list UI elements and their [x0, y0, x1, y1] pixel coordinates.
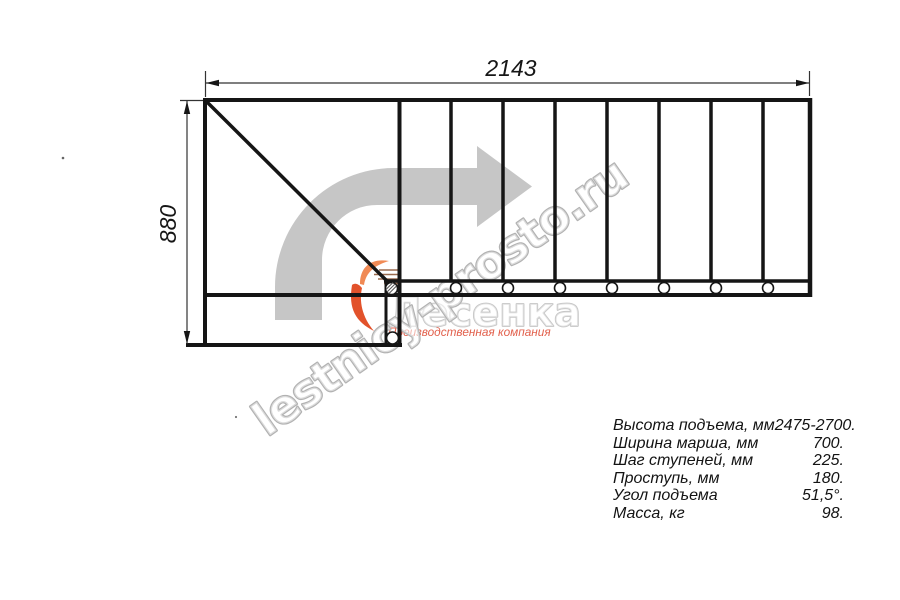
spec-label: Шаг ступеней, мм — [613, 452, 753, 470]
bolt-hole — [763, 283, 774, 294]
dim-arrow-right — [796, 80, 809, 86]
spec-label: Высота подъема, мм — [613, 417, 775, 435]
spec-row-step-pitch: Шаг ступеней, мм 225. — [613, 452, 844, 470]
dim-arrow-left — [206, 80, 219, 86]
spec-value: 98. — [822, 505, 844, 523]
spec-value: 180. — [813, 470, 844, 488]
spec-value: 700. — [813, 435, 844, 453]
spec-row-mass: Масса, кг 98. — [613, 505, 844, 523]
bolt-hole — [607, 283, 618, 294]
spec-label: Масса, кг — [613, 505, 685, 523]
spec-label: Угол подъема — [613, 487, 718, 505]
print-speck — [62, 157, 65, 160]
spec-value: 51,5°. — [802, 487, 844, 505]
bolt-hole — [659, 283, 670, 294]
spec-row-angle: Угол подъема 51,5°. — [613, 487, 844, 505]
spec-row-flight-width: Ширина марша, мм 700. — [613, 435, 844, 453]
stair-drawing-page: Лесенка Производственная компания lestni… — [0, 0, 900, 600]
dimension-width-label: 2143 — [484, 55, 536, 81]
spec-label: Проступь, мм — [613, 470, 719, 488]
dimension-width: 2143 — [206, 55, 810, 97]
dimension-height-label: 880 — [155, 205, 181, 244]
spec-label: Ширина марша, мм — [613, 435, 758, 453]
bolt-hole — [451, 283, 462, 294]
dim-arrow-bottom — [184, 331, 190, 344]
dim-arrow-top — [184, 101, 190, 114]
bolt-hole — [711, 283, 722, 294]
bolt-hole — [555, 283, 566, 294]
spec-value: 225. — [813, 452, 844, 470]
dimension-height: 880 — [155, 101, 203, 345]
bolt-hole — [503, 283, 514, 294]
spec-row-tread: Проступь, мм 180. — [613, 470, 844, 488]
spec-value: 2475-2700. — [775, 417, 856, 435]
post-fixing-hole — [387, 332, 399, 344]
spec-row-height: Высота подъема, мм 2475-2700. — [613, 417, 844, 435]
spec-table: Высота подъема, мм 2475-2700. Ширина мар… — [613, 417, 844, 523]
print-speck — [235, 416, 237, 418]
post-section-circle — [386, 283, 398, 295]
